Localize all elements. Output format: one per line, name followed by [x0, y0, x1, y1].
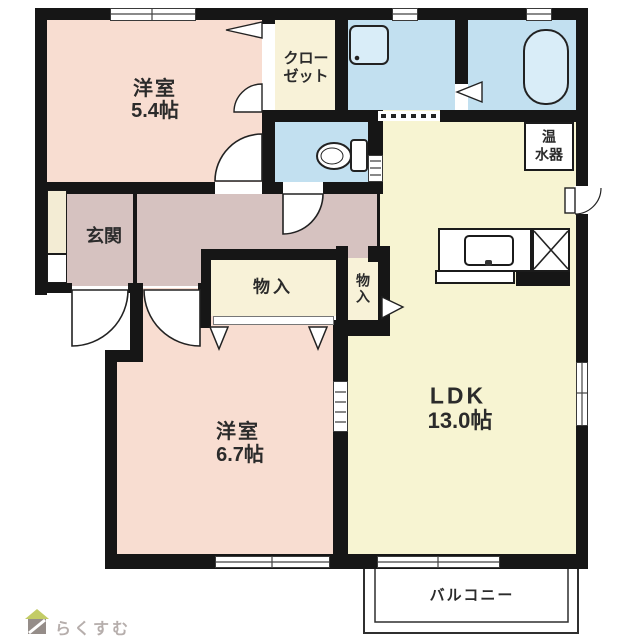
closet-label-line2: ゼット [283, 69, 328, 86]
storage2-label: 物入 [353, 273, 373, 305]
rakusumu-logo-icon [25, 609, 49, 634]
bedroom1-size: 5.4帖 [131, 100, 179, 122]
right-wall-door-leaf [565, 188, 575, 213]
floor-plan: 洋室 5.4帖 クロー ゼット 玄関 物入 物入 洋室 6.7帖 LDK 13.… [0, 0, 640, 640]
front-door-swing [72, 290, 128, 346]
balcony-label: バルコニー [430, 588, 515, 605]
doors-fixtures-layer [0, 0, 640, 640]
closet-door-triangle [226, 22, 262, 38]
bedroom2-vent-ticks [335, 392, 346, 422]
ldk-size: 13.0帖 [428, 409, 493, 433]
ldk-label: LDK [430, 383, 486, 408]
genkan-label: 玄関 [86, 227, 122, 247]
bedroom1-label: 洋室 [133, 78, 177, 100]
toilet-door-swing [283, 194, 323, 234]
window-mullions [111, 9, 587, 568]
closet-label-line1: クロー [283, 51, 328, 68]
bedroom1-door-swing [215, 134, 262, 181]
rakusumu-logo-text: らくすむ [55, 615, 131, 639]
refrigerator-x-mark [534, 231, 568, 269]
bedroom2-door-swing [144, 290, 200, 346]
toilet-vent-ticks [370, 161, 381, 175]
storage2-door-triangle [382, 297, 403, 318]
bathtub [524, 30, 568, 104]
bedroom2-size: 6.7帖 [216, 444, 264, 466]
water-heater-label-line2: 水器 [535, 147, 563, 162]
water-heater-label-line1: 温 [542, 129, 556, 144]
bathroom-door-triangle [457, 82, 482, 102]
right-wall-door-swing [575, 188, 601, 214]
storage1-door-v2 [309, 327, 327, 349]
bedroom2-label: 洋室 [216, 421, 260, 443]
toilet-fixture [317, 140, 367, 171]
closet-door-swing [234, 84, 262, 112]
storage1-label: 物入 [253, 279, 293, 298]
washbasin [350, 26, 388, 64]
storage1-door-v1 [210, 327, 228, 349]
